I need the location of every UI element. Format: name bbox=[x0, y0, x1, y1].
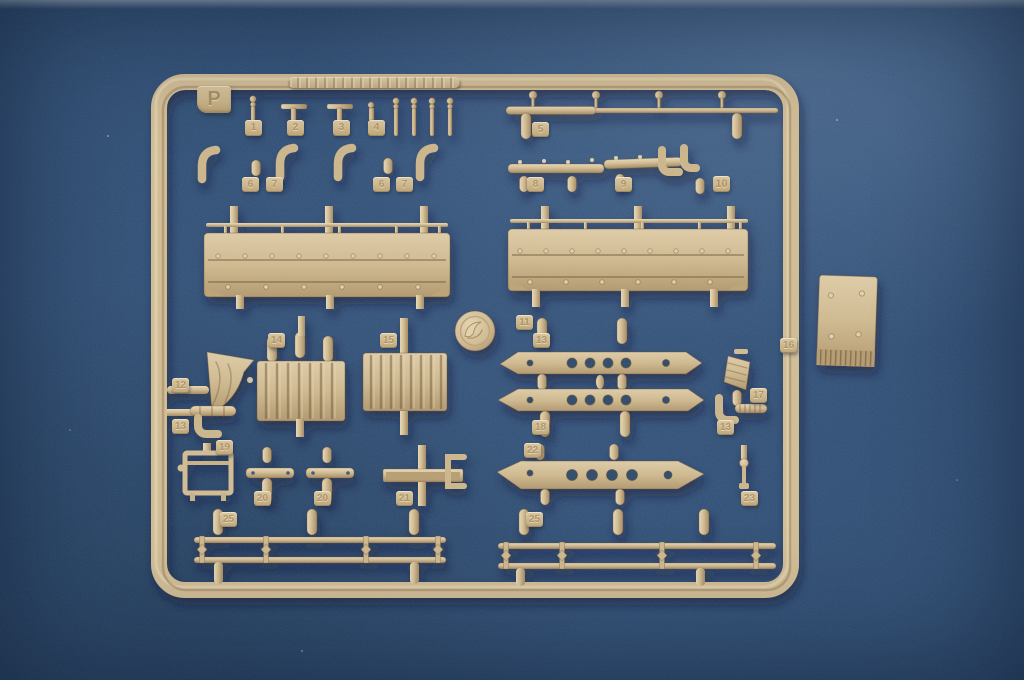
part-number-tab: 5 bbox=[532, 122, 549, 137]
part-number-tab: 14 bbox=[268, 333, 285, 348]
part-number-tab: 23 bbox=[741, 491, 758, 506]
part-number-tab: 2 bbox=[287, 120, 304, 136]
part-number-tab: 10 bbox=[713, 176, 730, 192]
part-number-tab: 13 bbox=[717, 420, 734, 435]
part-number-tab: 22 bbox=[524, 443, 541, 458]
part-number-tab: 17 bbox=[750, 388, 767, 403]
part-number-tab: 7 bbox=[266, 177, 283, 192]
sprue-letter-tab: P bbox=[197, 86, 231, 113]
part-number-tab: 1 bbox=[245, 120, 262, 136]
part-number-tabs: P 1 2 3 4 5 6 7 6 7 8 9 10 11 13 14 15 1… bbox=[0, 0, 1024, 680]
part-number-tab: 7 bbox=[396, 177, 413, 192]
part-number-tab: 6 bbox=[242, 177, 259, 192]
part-number-tab: 3 bbox=[333, 120, 350, 136]
part-number-tab: 9 bbox=[615, 177, 632, 192]
part-number-tab: 11 bbox=[516, 315, 533, 330]
mold-label-plate bbox=[288, 77, 460, 88]
part-number-tab: 4 bbox=[368, 120, 385, 136]
part-number-tab: 18 bbox=[532, 420, 549, 435]
part-number-tab: 15 bbox=[380, 333, 397, 348]
part-number-tab: 13 bbox=[533, 333, 550, 348]
part-number-tab: 8 bbox=[527, 177, 544, 192]
part-number-tab: 25 bbox=[526, 512, 543, 527]
part-number-tab: 21 bbox=[396, 491, 413, 506]
part-number-tab: 20 bbox=[254, 491, 271, 506]
part-number-tab: 20 bbox=[314, 491, 331, 506]
part-number-tab: 12 bbox=[172, 378, 189, 393]
part-number-tab: 19 bbox=[216, 440, 233, 455]
part-number-tab: 13 bbox=[172, 419, 189, 434]
part-number-tab: 16 bbox=[780, 338, 797, 353]
part-number-tab: 25 bbox=[220, 512, 237, 527]
photo-scene: P 1 2 3 4 5 6 7 6 7 8 9 10 11 13 14 15 1… bbox=[0, 0, 1024, 680]
part-number-tab: 6 bbox=[373, 177, 390, 192]
